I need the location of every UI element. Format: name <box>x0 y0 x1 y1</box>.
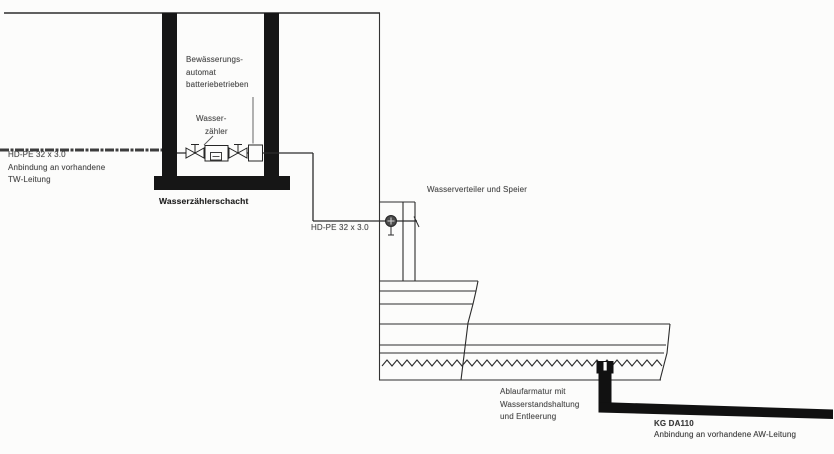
label-line: TW-Leitung <box>8 174 105 187</box>
label-distributor: Wasserverteiler und Speier <box>427 184 527 197</box>
drain-standpipe <box>599 372 612 407</box>
label-line: automat <box>186 67 249 80</box>
shaft-floor <box>154 176 290 190</box>
label-line: HD-PE 32 x 3.0 <box>311 222 369 235</box>
drain-assembly <box>597 361 834 419</box>
label-line: Wasserverteiler und Speier <box>427 184 527 197</box>
label-line: batteriebetrieben <box>186 79 249 92</box>
distributor-column <box>379 202 415 281</box>
label-irrigation-automat: Bewässerungs- automat batteriebetrieben <box>186 54 249 92</box>
schematic-drawing: HD-PE 32 x 3.0 Anbindung an vorhandene T… <box>0 0 834 454</box>
label-water-meter: Wasser- zähler <box>196 113 228 138</box>
label-supply-pipe: HD-PE 32 x 3.0 <box>311 222 369 235</box>
label-line: zähler <box>196 126 228 139</box>
meter-assembly <box>186 145 263 162</box>
shaft-left-wall <box>162 13 177 178</box>
label-drain-fitting: Ablaufarmatur mit Wasserstandshaltung un… <box>500 386 579 424</box>
slab-joint-line <box>461 281 478 380</box>
label-aw-connection: KG DA110 Anbindung an vorhandene AW-Leit… <box>654 418 796 440</box>
shutoff-valve-icon <box>229 145 247 159</box>
label-line: Anbindung an vorhandene AW-Leitung <box>654 429 796 440</box>
basin-right-edge <box>660 324 670 380</box>
label-line: und Entleerung <box>500 411 579 424</box>
label-line: KG DA110 <box>654 418 796 429</box>
label-line: Wasserstandshaltung <box>500 399 579 412</box>
label-line: HD-PE 32 x 3.0 <box>8 149 105 162</box>
water-surface-zigzag <box>382 360 662 366</box>
label-line: Wasser- <box>196 113 228 126</box>
label-line: Bewässerungs- <box>186 54 249 67</box>
label-line: Wasserzählerschacht <box>159 195 248 208</box>
shutoff-valve-icon <box>186 145 204 159</box>
drain-fitting-slot <box>604 362 607 371</box>
water-meter-box-icon <box>205 146 228 162</box>
linework-canvas <box>0 0 834 454</box>
label-line: Ablaufarmatur mit <box>500 386 579 399</box>
aw-drain-pipe <box>599 402 834 419</box>
label-line: Anbindung an vorhandene <box>8 162 105 175</box>
spout-fitting-icon <box>386 216 397 236</box>
irrigation-automat-box-icon <box>249 145 263 161</box>
label-shaft-title: Wasserzählerschacht <box>159 195 248 208</box>
label-tw-connection: HD-PE 32 x 3.0 Anbindung an vorhandene T… <box>8 149 105 187</box>
